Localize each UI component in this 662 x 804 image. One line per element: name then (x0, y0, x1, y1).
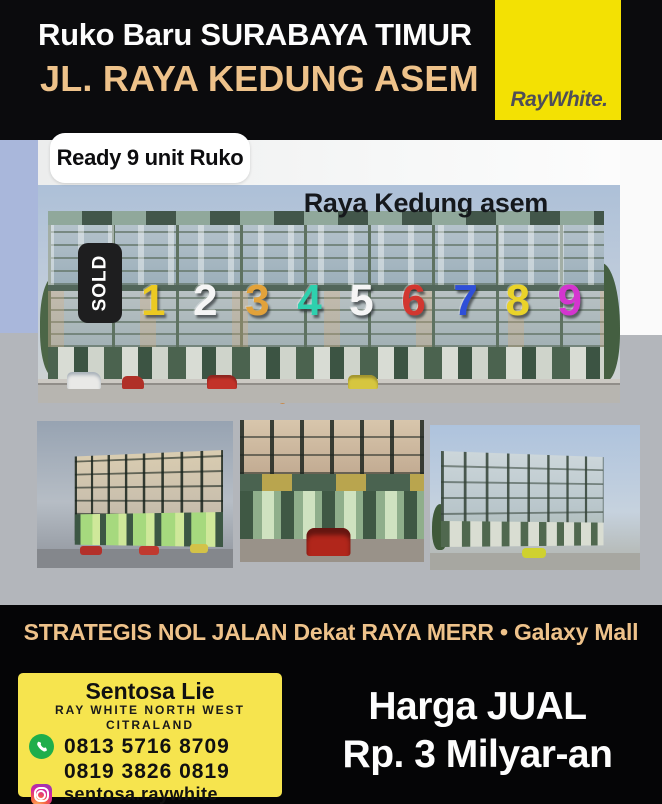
street-name-label: Raya Kedung asem (304, 188, 548, 219)
unit-number-4: 4 (297, 279, 321, 323)
thumbnail-day-view (430, 425, 640, 570)
phone-number-2: 0819 3826 0819 (64, 760, 282, 783)
thumbnail-storefront-view (240, 420, 424, 562)
sold-badge: SOLD (78, 243, 122, 323)
unit-number-8: 8 (505, 279, 529, 323)
main-render-image: Raya Kedung asem SOLD 123456789 (38, 185, 620, 403)
sold-badge-text: SOLD (89, 255, 111, 312)
thumbnail-dusk-view (37, 421, 233, 568)
thumbnail-dusk-car (190, 544, 208, 553)
unit-number-2: 2 (193, 279, 217, 323)
footer: STRATEGIS NOL JALAN Dekat RAYA MERR • Ga… (0, 605, 662, 804)
instagram-row: sentosa.raywhite (18, 784, 282, 804)
whatsapp-icon (29, 734, 54, 759)
unit-number-9: 9 (558, 279, 582, 323)
phone-row-1: 0813 5716 8709 (18, 734, 282, 759)
thumbnail-dusk-car (80, 546, 102, 555)
phone-row-2: 0819 3826 0819 (18, 760, 282, 783)
ready-units-badge: Ready 9 unit Ruko (50, 133, 250, 183)
instagram-icon (31, 784, 52, 804)
office-name-line1: RAY WHITE NORTH WEST (18, 703, 282, 718)
car-yellow (348, 375, 378, 389)
car-white (67, 372, 101, 389)
car-red-small (122, 376, 144, 389)
headline-location: Ruko Baru SURABAYA TIMUR (38, 17, 472, 53)
price-value: Rp. 3 Milyar-an (295, 731, 660, 779)
instagram-handle: sentosa.raywhite (64, 784, 282, 804)
thumbnail-day-car (522, 548, 546, 558)
tagline: STRATEGIS NOL JALAN Dekat RAYA MERR • Ga… (0, 619, 662, 646)
unit-number-5: 5 (349, 279, 373, 323)
price-label: Harga JUAL (295, 683, 660, 731)
thumbnail-dusk-ground-glow (75, 512, 224, 547)
thumbnail-storefront-signs (240, 474, 424, 491)
car-red (207, 375, 237, 389)
unit-number-3: 3 (245, 279, 269, 323)
header: Ruko Baru SURABAYA TIMUR JL. RAYA KEDUNG… (0, 0, 662, 140)
left-accent-strip (0, 140, 38, 333)
unit-number-6: 6 (401, 279, 425, 323)
right-accent-strip (620, 140, 662, 335)
contact-card: Sentosa Lie RAY WHITE NORTH WEST CITRALA… (18, 673, 282, 797)
flyer: Ruko Baru SURABAYA TIMUR JL. RAYA KEDUNG… (0, 0, 662, 804)
unit-number-7: 7 (453, 279, 477, 323)
agent-name: Sentosa Lie (18, 679, 282, 703)
unit-numbers: 123456789 (141, 279, 582, 323)
headline-street: JL. RAYA KEDUNG ASEM (40, 58, 479, 100)
unit-number-1: 1 (141, 279, 165, 323)
thumbnail-storefront-car (306, 528, 350, 556)
thumbnail-storefront-glass (240, 420, 424, 474)
phone-number-1: 0813 5716 8709 (64, 735, 282, 758)
price-block: Harga JUAL Rp. 3 Milyar-an (295, 683, 660, 778)
thumbnail-day-arcade (441, 521, 604, 547)
raywhite-logo-text: RayWhite. (501, 88, 617, 112)
office-name-line2: CITRALAND (18, 718, 282, 733)
raywhite-logo: RayWhite. (495, 0, 621, 120)
gallery-section: Ready 9 unit Ruko Raya Kedung asem SOLD (0, 140, 662, 605)
thumbnail-dusk-car (139, 546, 159, 555)
